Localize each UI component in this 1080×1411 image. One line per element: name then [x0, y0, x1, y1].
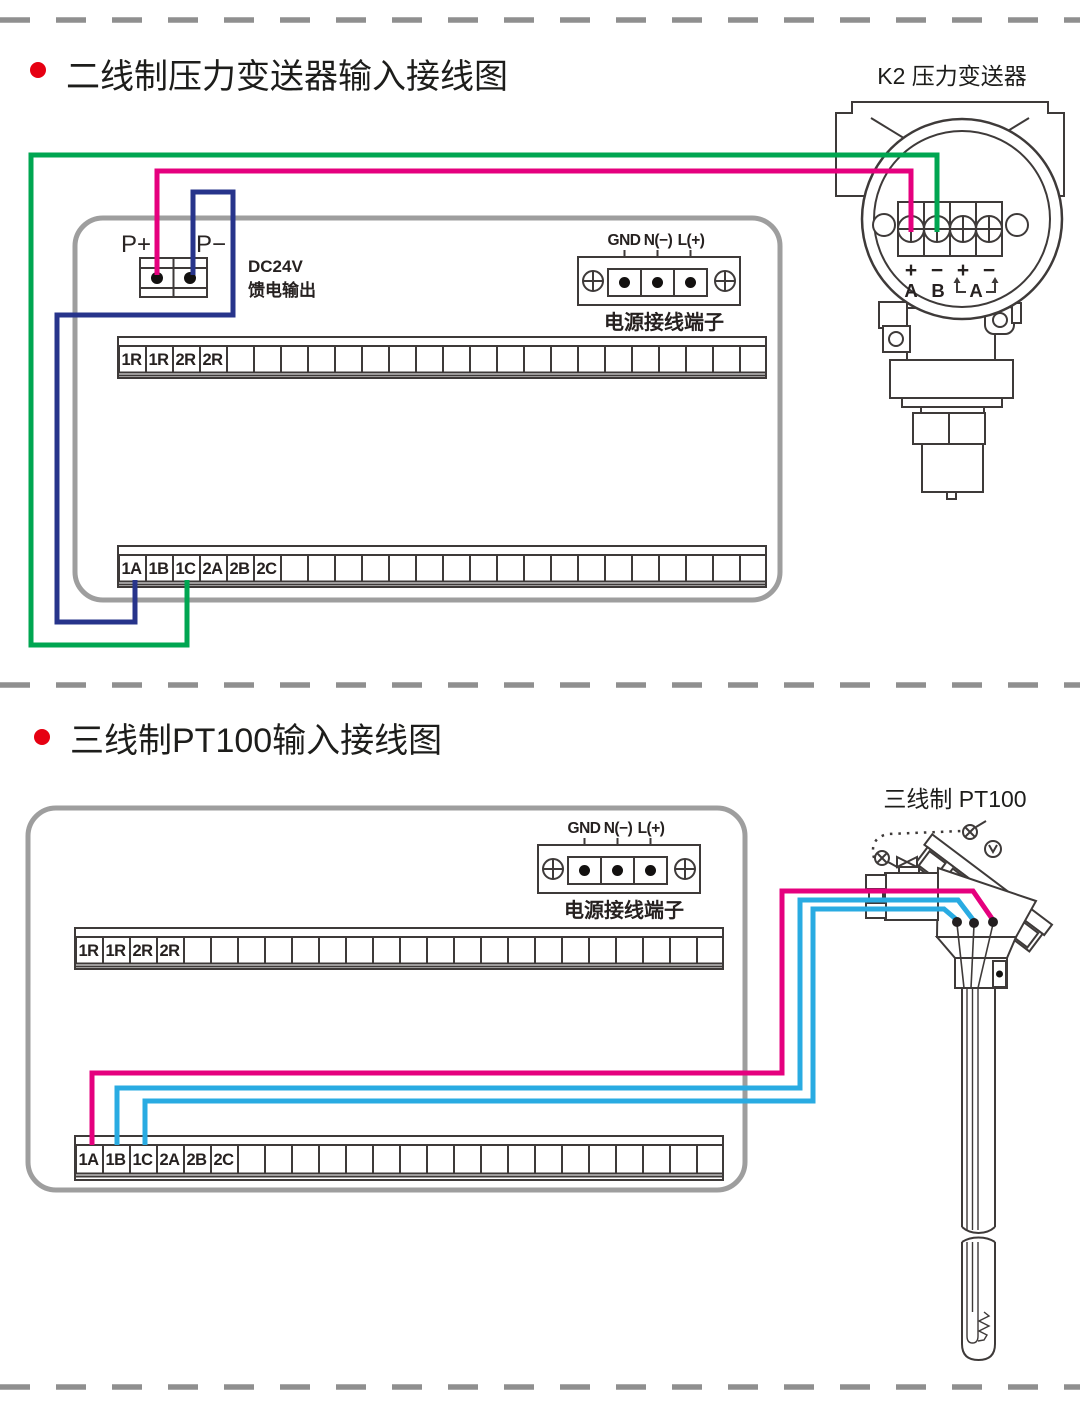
- strip-cell-label: 2B: [186, 1151, 207, 1169]
- power-terminal-2: GND N(−) L(+) 电源接线端子: [538, 820, 700, 922]
- l-terminal-dot: [645, 865, 656, 876]
- cable-gland: [866, 875, 886, 918]
- strip-cell-label: 2B: [229, 560, 250, 578]
- strip-cell-label: 2C: [256, 560, 277, 578]
- terminal-letter-a: A: [904, 280, 917, 301]
- gnd-label: GND: [608, 232, 641, 249]
- probe-sheath: [962, 988, 995, 1360]
- polarity-sign: +: [905, 259, 917, 282]
- wing-screw-icon: [897, 857, 919, 873]
- strip-cell-label: 1R: [121, 351, 142, 369]
- head-entry: [885, 873, 938, 920]
- cap-screw-icon: [875, 851, 899, 868]
- section2: 三线制PT100输入接线图 三线制 PT100 GND N(−) L(+) 电源…: [28, 722, 1052, 1360]
- terminal-letter-b: B: [931, 280, 944, 301]
- head-funnel: [937, 937, 1016, 958]
- strip-cell-label: 2R: [159, 942, 180, 960]
- cap-screw-icon: [963, 821, 986, 839]
- power-terminal-caption: 电源接线端子: [604, 310, 724, 334]
- strip-cell-label: 1A: [121, 560, 142, 578]
- gnd-label: GND: [568, 820, 601, 837]
- section1-bullet-icon: [30, 62, 46, 78]
- side-hole-icon: [873, 214, 895, 236]
- power-terminal-caption: 电源接线端子: [564, 898, 684, 922]
- l-label: L(+): [678, 232, 705, 249]
- section1-title: 二线制压力变送器输入接线图: [66, 58, 508, 96]
- strip-cell-label: 2R: [175, 351, 196, 369]
- gnd-terminal-dot: [579, 865, 590, 876]
- wiring-diagram-page: 二线制压力变送器输入接线图 K2 压力变送器 P+ P− DC24V 馈电输出 …: [0, 0, 1080, 1411]
- feed-terminal: P+ P− DC24V 馈电输出: [121, 231, 316, 300]
- rtd-element-icon: [978, 1312, 989, 1341]
- l-terminal-dot: [685, 277, 696, 288]
- n-label: N(−): [644, 232, 673, 249]
- sensor-terminal-dots: [952, 917, 998, 928]
- strip-cell-label: 2A: [159, 1151, 180, 1169]
- strip-cell-label: 1R: [78, 942, 99, 960]
- terminal-strip-2-top: 1R 1R 2R 2R: [75, 928, 723, 969]
- n-terminal-dot: [652, 277, 663, 288]
- side-hole-icon: [1006, 214, 1028, 236]
- strip-cell-label: 2A: [202, 560, 223, 578]
- section1: 二线制压力变送器输入接线图 K2 压力变送器 P+ P− DC24V 馈电输出 …: [30, 58, 1064, 645]
- transmitter-label: K2 压力变送器: [877, 63, 1027, 89]
- strip-cell-label: 1A: [78, 1151, 99, 1169]
- strip-cell-label: 1C: [175, 560, 196, 578]
- strip-cell-label: 1R: [105, 942, 126, 960]
- strip-cell-label: 2R: [132, 942, 153, 960]
- transmitter-flange: [890, 360, 1013, 398]
- span-letter: A: [969, 280, 982, 301]
- polarity-sign: −: [931, 259, 943, 282]
- strip-cell-label: 1B: [105, 1151, 126, 1169]
- l-label: L(+): [638, 820, 665, 837]
- clamp-dot: [996, 971, 1003, 978]
- strip-cell-label: 2C: [213, 1151, 234, 1169]
- n-terminal-dot: [612, 865, 623, 876]
- p-plus-label: P+: [121, 231, 151, 258]
- polarity-sign: −: [983, 259, 995, 282]
- p-minus-label: P−: [196, 231, 226, 258]
- power-terminal-1: GND N(−) L(+) 电源接线端子: [578, 232, 740, 334]
- vent-screw-icon: [985, 841, 1001, 857]
- strip-cell-label: 1R: [148, 351, 169, 369]
- pressure-transmitter-drawing: + − + − A B A: [836, 102, 1064, 499]
- terminal-strip-2-bottom: 1A 1B 1C 2A 2B 2C: [75, 1136, 723, 1180]
- pt100-label: 三线制 PT100: [883, 786, 1026, 812]
- n-label: N(−): [604, 820, 633, 837]
- strip-cell-label: 1B: [148, 560, 169, 578]
- strip-cell-label: 1C: [132, 1151, 153, 1169]
- terminal-strip-1-top: 1R 1R 2R 2R: [118, 337, 766, 378]
- process-connection: [922, 444, 983, 492]
- section2-bullet-icon: [34, 729, 50, 745]
- dc24v-label: DC24V: [248, 257, 303, 276]
- terminal-strip-1-bottom: 1A 1B 1C 2A 2B 2C: [118, 546, 766, 587]
- strip-cell-label: 2R: [202, 351, 223, 369]
- feed-output-label: 馈电输出: [248, 280, 316, 300]
- gnd-terminal-dot: [619, 277, 630, 288]
- section2-title: 三线制PT100输入接线图: [70, 722, 442, 760]
- polarity-sign: +: [957, 259, 969, 282]
